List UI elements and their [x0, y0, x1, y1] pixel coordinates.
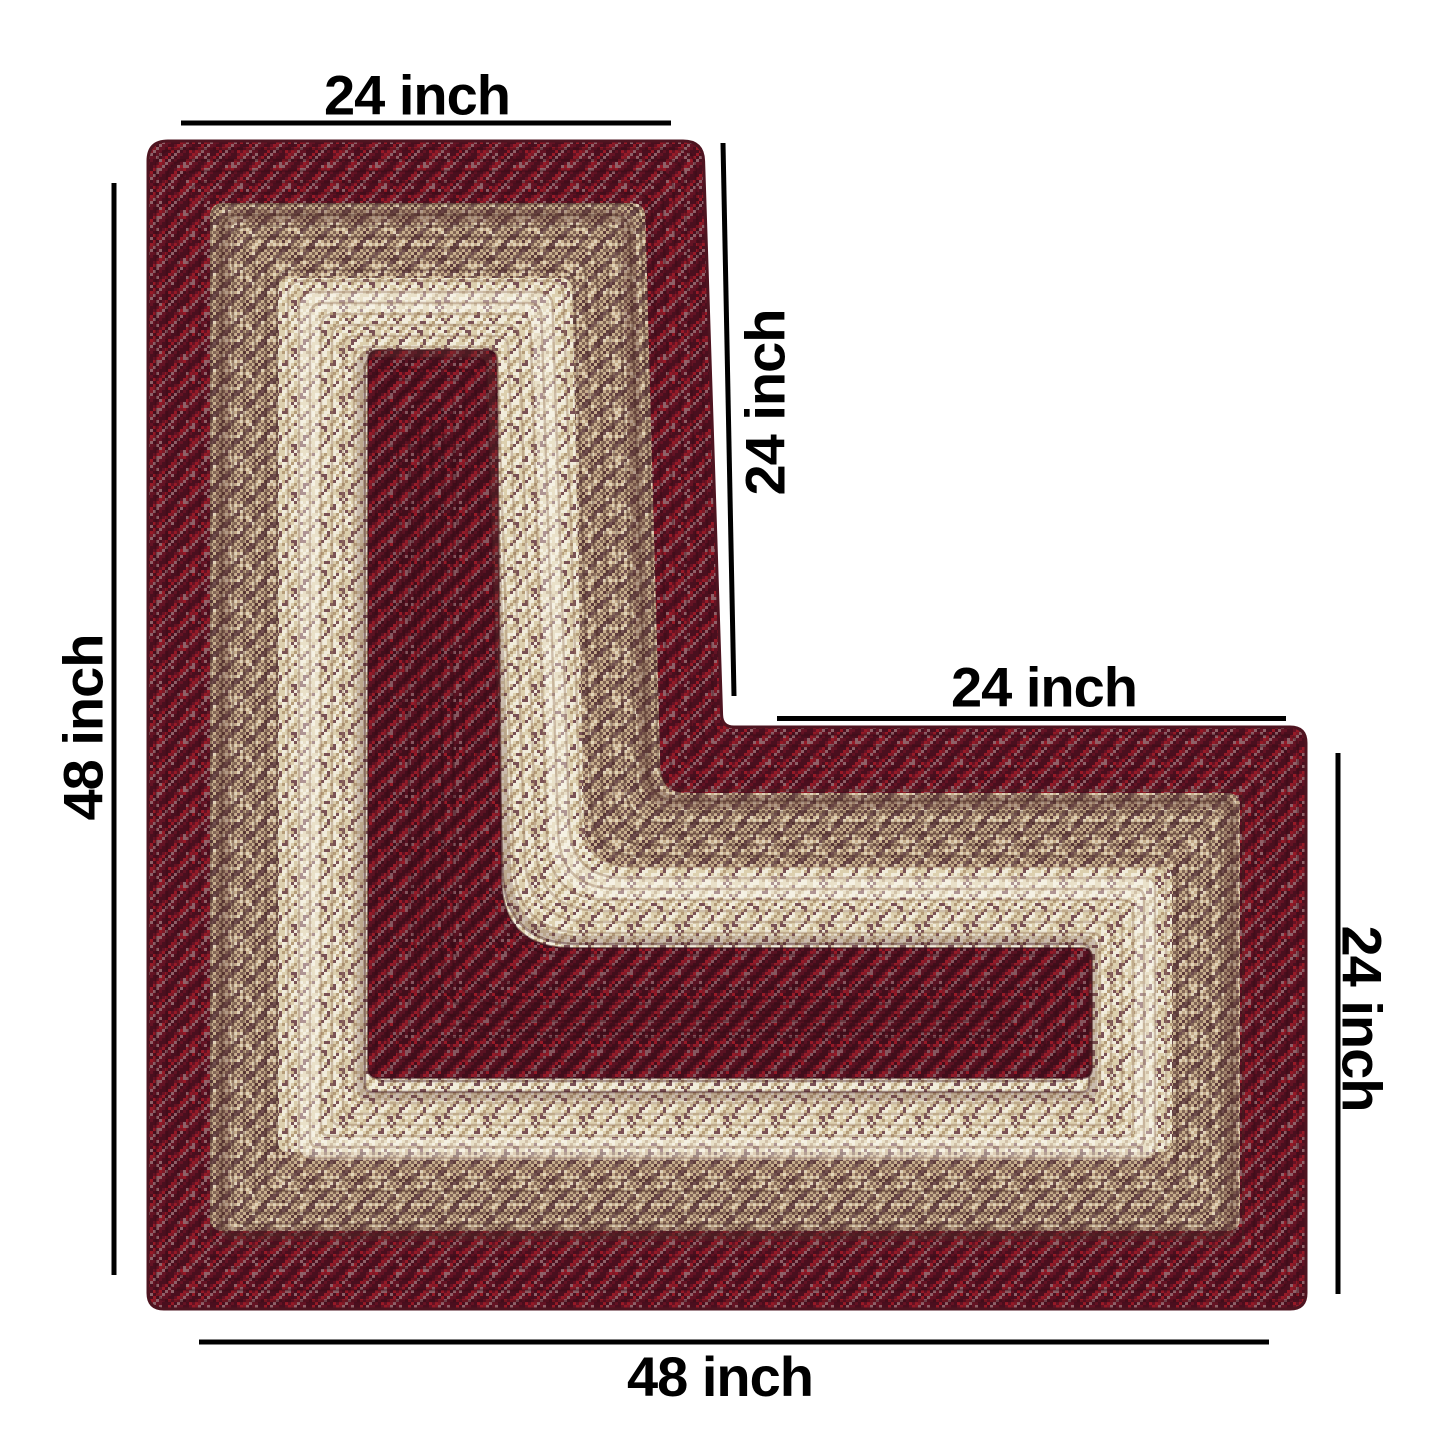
- svg-text:24 inch: 24 inch: [1331, 926, 1394, 1112]
- svg-text:24 inch: 24 inch: [951, 656, 1137, 719]
- svg-text:48 inch: 48 inch: [52, 635, 115, 821]
- svg-text:24 inch: 24 inch: [324, 64, 510, 127]
- svg-text:24 inch: 24 inch: [734, 310, 797, 496]
- svg-text:48 inch: 48 inch: [627, 1345, 813, 1408]
